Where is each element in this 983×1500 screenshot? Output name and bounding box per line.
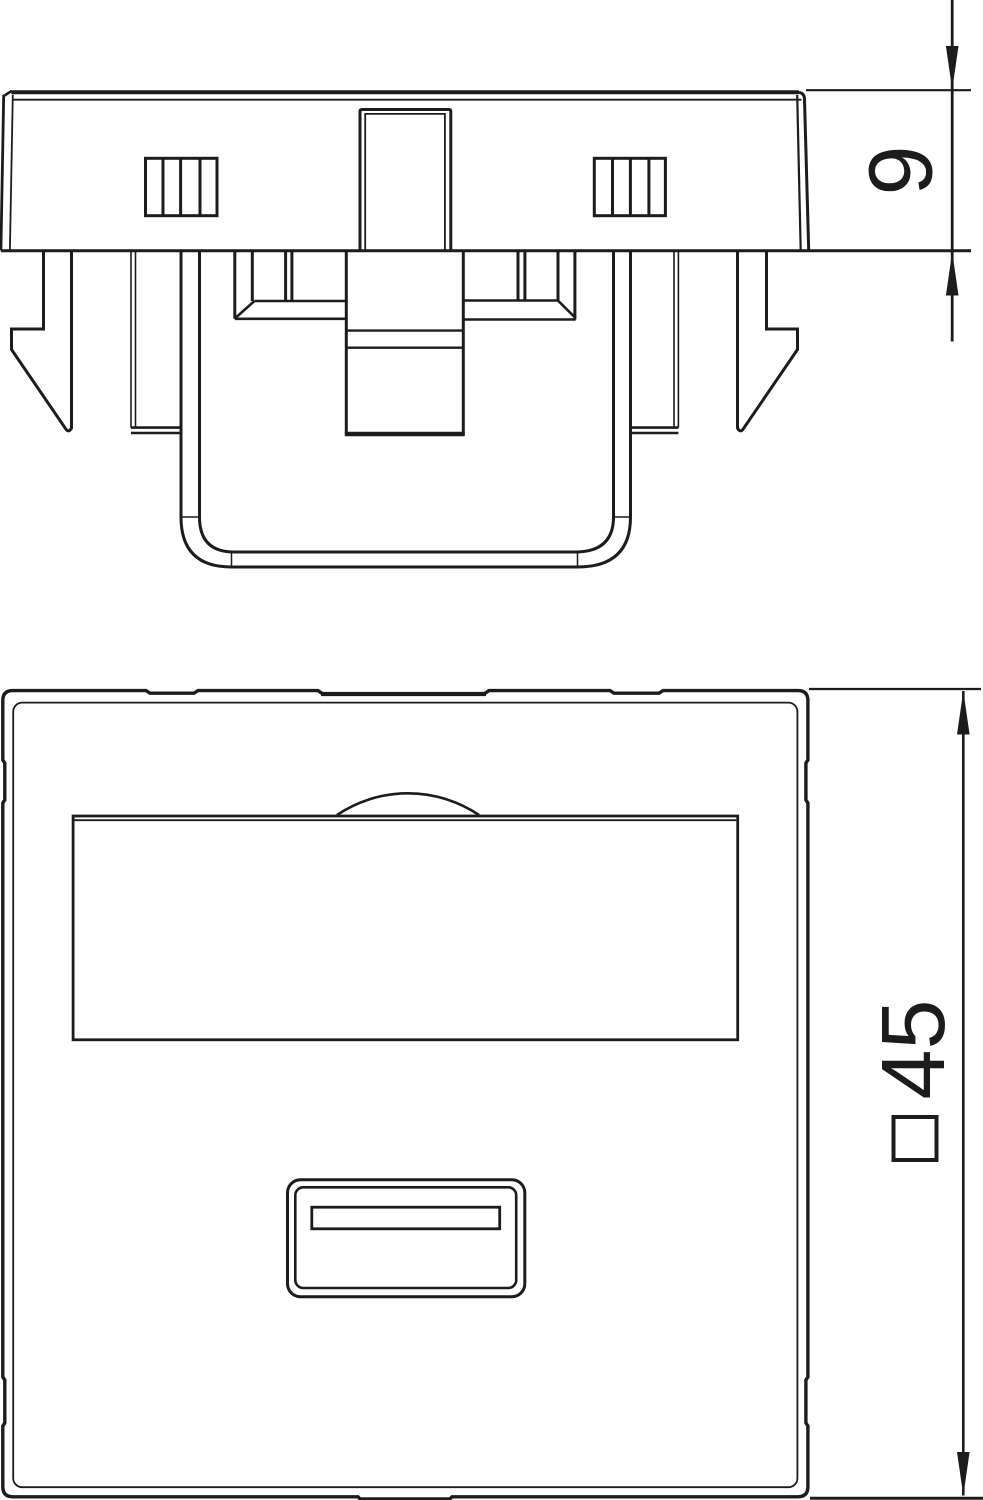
- svg-text:45: 45: [864, 999, 964, 1099]
- svg-text:9: 9: [852, 145, 952, 195]
